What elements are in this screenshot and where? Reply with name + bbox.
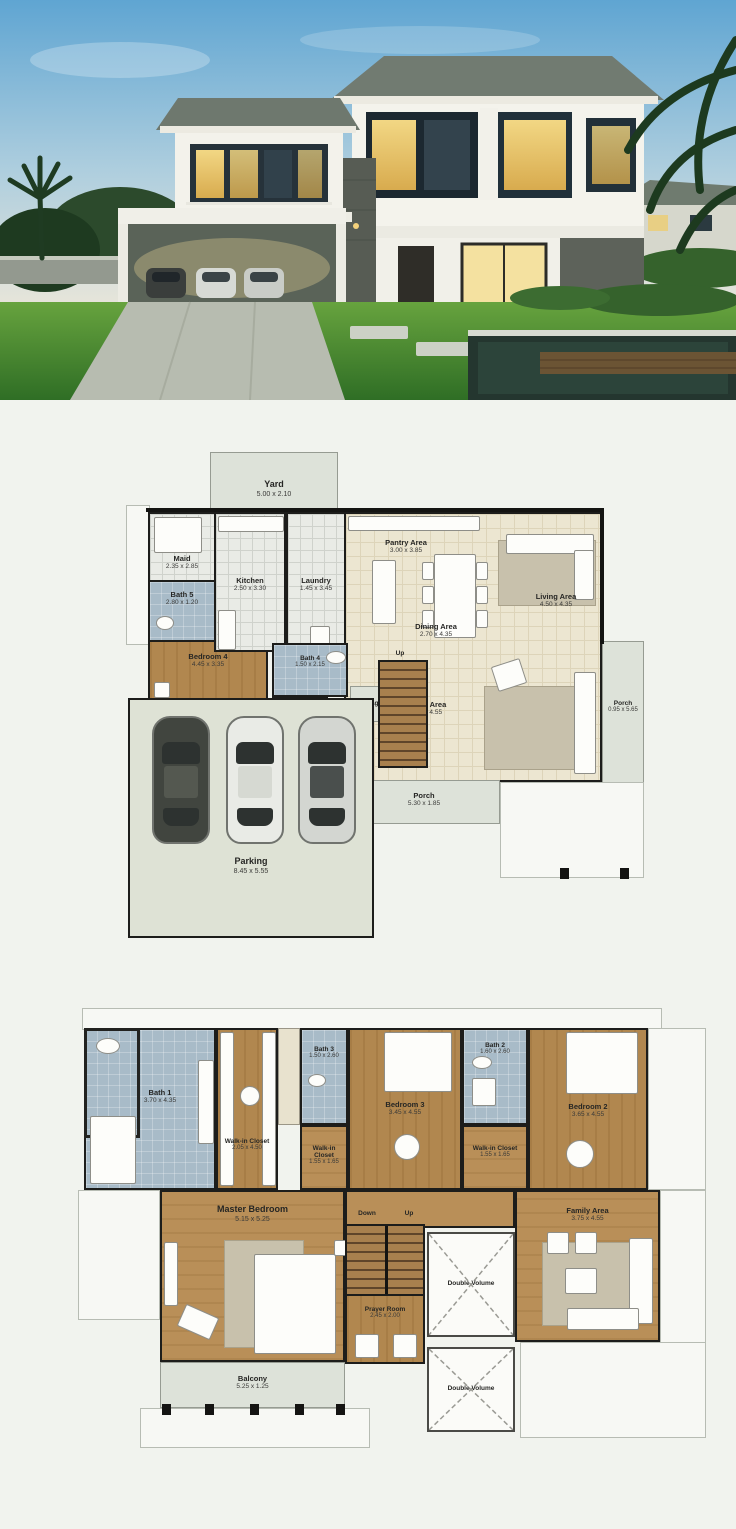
x-brace xyxy=(429,1234,513,1335)
room-walkin-closet-1: Walk-in Closet 2.05 x 4.50 xyxy=(216,1028,278,1190)
balcony-post xyxy=(295,1404,304,1415)
sofa xyxy=(567,1308,639,1330)
room-dims: 3.45 x 4.55 xyxy=(350,1109,460,1117)
exterior-wall xyxy=(146,508,604,512)
bed xyxy=(566,1032,638,1094)
car-dark xyxy=(152,716,210,844)
porch-post xyxy=(620,868,629,879)
toilet xyxy=(96,1038,120,1054)
cushion xyxy=(355,1334,379,1358)
toilet xyxy=(308,1074,326,1087)
room-walkin-closet-2: Walk-in Closet 1.55 x 1.65 xyxy=(300,1125,348,1190)
room-bedroom-3: Bedroom 3 3.45 x 4.55 xyxy=(348,1028,462,1190)
room-label: Bedroom 2 xyxy=(530,1102,646,1111)
room-label: Porch xyxy=(603,700,643,707)
room-dims: 8.45 x 5.55 xyxy=(130,867,372,876)
bed xyxy=(254,1254,336,1354)
room-laundry: Laundry 1.45 x 3.45 xyxy=(286,512,346,652)
x-brace xyxy=(429,1349,513,1430)
flat-roof-left xyxy=(156,98,360,130)
balcony-rail xyxy=(186,202,332,205)
room-label: Bath 5 xyxy=(150,590,214,599)
room-dims: 5.15 x 5.25 xyxy=(162,1215,343,1224)
room-porch-side: Porch 0.95 x 5.65 xyxy=(602,641,644,805)
room-label: Walk-in Closet xyxy=(302,1145,346,1159)
stairs-upper xyxy=(345,1224,425,1296)
vanity xyxy=(198,1060,214,1144)
maid-bed xyxy=(154,517,202,553)
room-dims: 1.55 x 1.65 xyxy=(302,1159,346,1166)
entry-door xyxy=(398,246,434,308)
room-dims: 3.75 x 4.55 xyxy=(517,1215,658,1223)
room-dims: 5.25 x 1.25 xyxy=(161,1383,344,1391)
pool-coping xyxy=(468,330,736,336)
room-parking: Parking 8.45 x 5.55 xyxy=(128,698,374,938)
house-photo-scene xyxy=(0,0,736,400)
room-label: Walk-in Closet xyxy=(464,1145,526,1152)
sink xyxy=(326,651,346,664)
room-label: Bath 3 xyxy=(302,1046,346,1053)
room-dims: 2.45 x 2.00 xyxy=(347,1313,423,1320)
room-master-bedroom: Master Bedroom 5.15 x 5.25 xyxy=(160,1190,345,1362)
balcony-post xyxy=(336,1404,345,1415)
room-dims: 1.60 x 2.60 xyxy=(464,1049,526,1056)
room-label: Bath 2 xyxy=(464,1042,526,1049)
wardrobe xyxy=(220,1032,234,1186)
room-bath-5: Bath 5 2.80 x 1.20 xyxy=(148,580,216,642)
room-walkin-closet-3: Walk-in Closet 1.55 x 1.65 xyxy=(462,1125,528,1190)
room-dims: 2.35 x 2.85 xyxy=(150,563,214,571)
deck-bottom-right xyxy=(520,1342,706,1438)
room-dims: 2.50 x 3.30 xyxy=(216,585,284,593)
eave-deck-family xyxy=(660,1190,706,1345)
room-label: Family Area xyxy=(517,1206,658,1215)
eave-deck-left xyxy=(78,1190,160,1320)
coffee-table xyxy=(565,1268,597,1294)
wardrobe-strip xyxy=(278,1028,300,1125)
room-bath-2: Bath 2 1.60 x 2.60 xyxy=(462,1028,528,1125)
sink xyxy=(472,1056,492,1069)
balcony-post xyxy=(205,1404,214,1415)
balcony-post xyxy=(250,1404,259,1415)
room-kitchen: Kitchen 2.50 x 3.30 xyxy=(214,512,286,652)
room-dims: 4.45 x 3.35 xyxy=(150,661,266,669)
terrace-deck xyxy=(500,782,644,878)
room-balcony: Balcony 5.25 x 1.25 xyxy=(160,1362,345,1408)
porch-post xyxy=(560,868,569,879)
room-label: Yard xyxy=(211,479,337,490)
eave-deck-top xyxy=(82,1008,662,1030)
house-exterior-photo xyxy=(0,0,736,400)
stairs-ground xyxy=(378,660,428,768)
room-dims: 1.55 x 1.65 xyxy=(464,1152,526,1159)
chair xyxy=(422,562,434,580)
island-counter xyxy=(372,560,396,624)
sofa xyxy=(574,672,596,774)
room-maid: Maid 2.35 x 2.85 xyxy=(148,512,216,582)
double-volume-2: Double Volume xyxy=(427,1347,515,1432)
kitchen-stove xyxy=(218,610,236,650)
room-label: Balcony xyxy=(161,1374,344,1383)
room-label: Parking xyxy=(130,856,372,867)
dresser xyxy=(164,1242,178,1306)
room-bath-4: Bath 4 1.50 x 2.15 xyxy=(272,643,348,697)
room-label: Kitchen xyxy=(216,576,284,585)
room-label: Master Bedroom xyxy=(162,1204,343,1215)
upper-hall xyxy=(345,1190,515,1228)
stair-divider xyxy=(385,1226,388,1294)
kitchen-counter xyxy=(218,516,284,532)
hip-roof xyxy=(330,56,664,100)
room-dims: 3.65 x 4.55 xyxy=(530,1111,646,1119)
side-deck xyxy=(126,505,150,645)
carport-roof xyxy=(118,208,346,224)
sofa xyxy=(574,550,594,600)
chair xyxy=(422,610,434,628)
toilet xyxy=(156,616,174,630)
pantry-counter xyxy=(348,516,480,531)
room-dims: 1.45 x 3.45 xyxy=(288,585,344,593)
room-dims: 2.80 x 1.20 xyxy=(150,599,214,607)
room-dims: 1.50 x 2.60 xyxy=(302,1053,346,1060)
wardrobe xyxy=(262,1032,276,1186)
nightstand xyxy=(154,682,170,698)
chair xyxy=(422,586,434,604)
room-label: Laundry xyxy=(288,576,344,585)
eave-deck-right xyxy=(648,1028,706,1190)
chair xyxy=(476,586,488,604)
room-prayer-room: Prayer Room 2.45 x 2.00 xyxy=(345,1294,425,1364)
stool xyxy=(240,1086,260,1106)
chaise xyxy=(177,1304,220,1341)
room-dims: 5.00 x 2.10 xyxy=(211,490,337,499)
car-silver xyxy=(298,716,356,844)
house-plan-collage: Yard 5.00 x 2.10 Maid 2.35 x 2.85 Bath 5… xyxy=(0,0,736,1529)
parked-cars-photo xyxy=(146,268,284,298)
room-dims: 0.95 x 5.65 xyxy=(603,707,643,714)
pool-deck xyxy=(540,352,736,374)
table xyxy=(566,1140,594,1168)
armchair xyxy=(547,1232,569,1254)
bed xyxy=(384,1032,452,1092)
table xyxy=(394,1134,420,1160)
shower xyxy=(472,1078,496,1106)
armchair xyxy=(575,1232,597,1254)
room-label: Maid xyxy=(150,554,214,563)
chair xyxy=(476,610,488,628)
car-white xyxy=(226,716,284,844)
room-label: Bedroom 4 xyxy=(150,652,266,661)
room-family-area: Family Area 3.75 x 4.55 xyxy=(515,1190,660,1342)
room-label: Prayer Room xyxy=(347,1306,423,1313)
bathtub xyxy=(90,1116,136,1184)
room-label: Bedroom 3 xyxy=(350,1100,460,1109)
room-bath-3: Bath 3 1.50 x 2.60 xyxy=(300,1028,348,1125)
chair xyxy=(476,562,488,580)
double-volume-1: Double Volume xyxy=(427,1232,515,1337)
balcony-post xyxy=(162,1404,171,1415)
room-bath-1: Bath 1 3.70 x 4.35 xyxy=(84,1028,216,1190)
cushion xyxy=(393,1334,417,1358)
dining-table xyxy=(434,554,476,638)
exterior-wall xyxy=(600,508,604,644)
room-bedroom-2: Bedroom 2 3.65 x 4.55 xyxy=(528,1028,648,1190)
